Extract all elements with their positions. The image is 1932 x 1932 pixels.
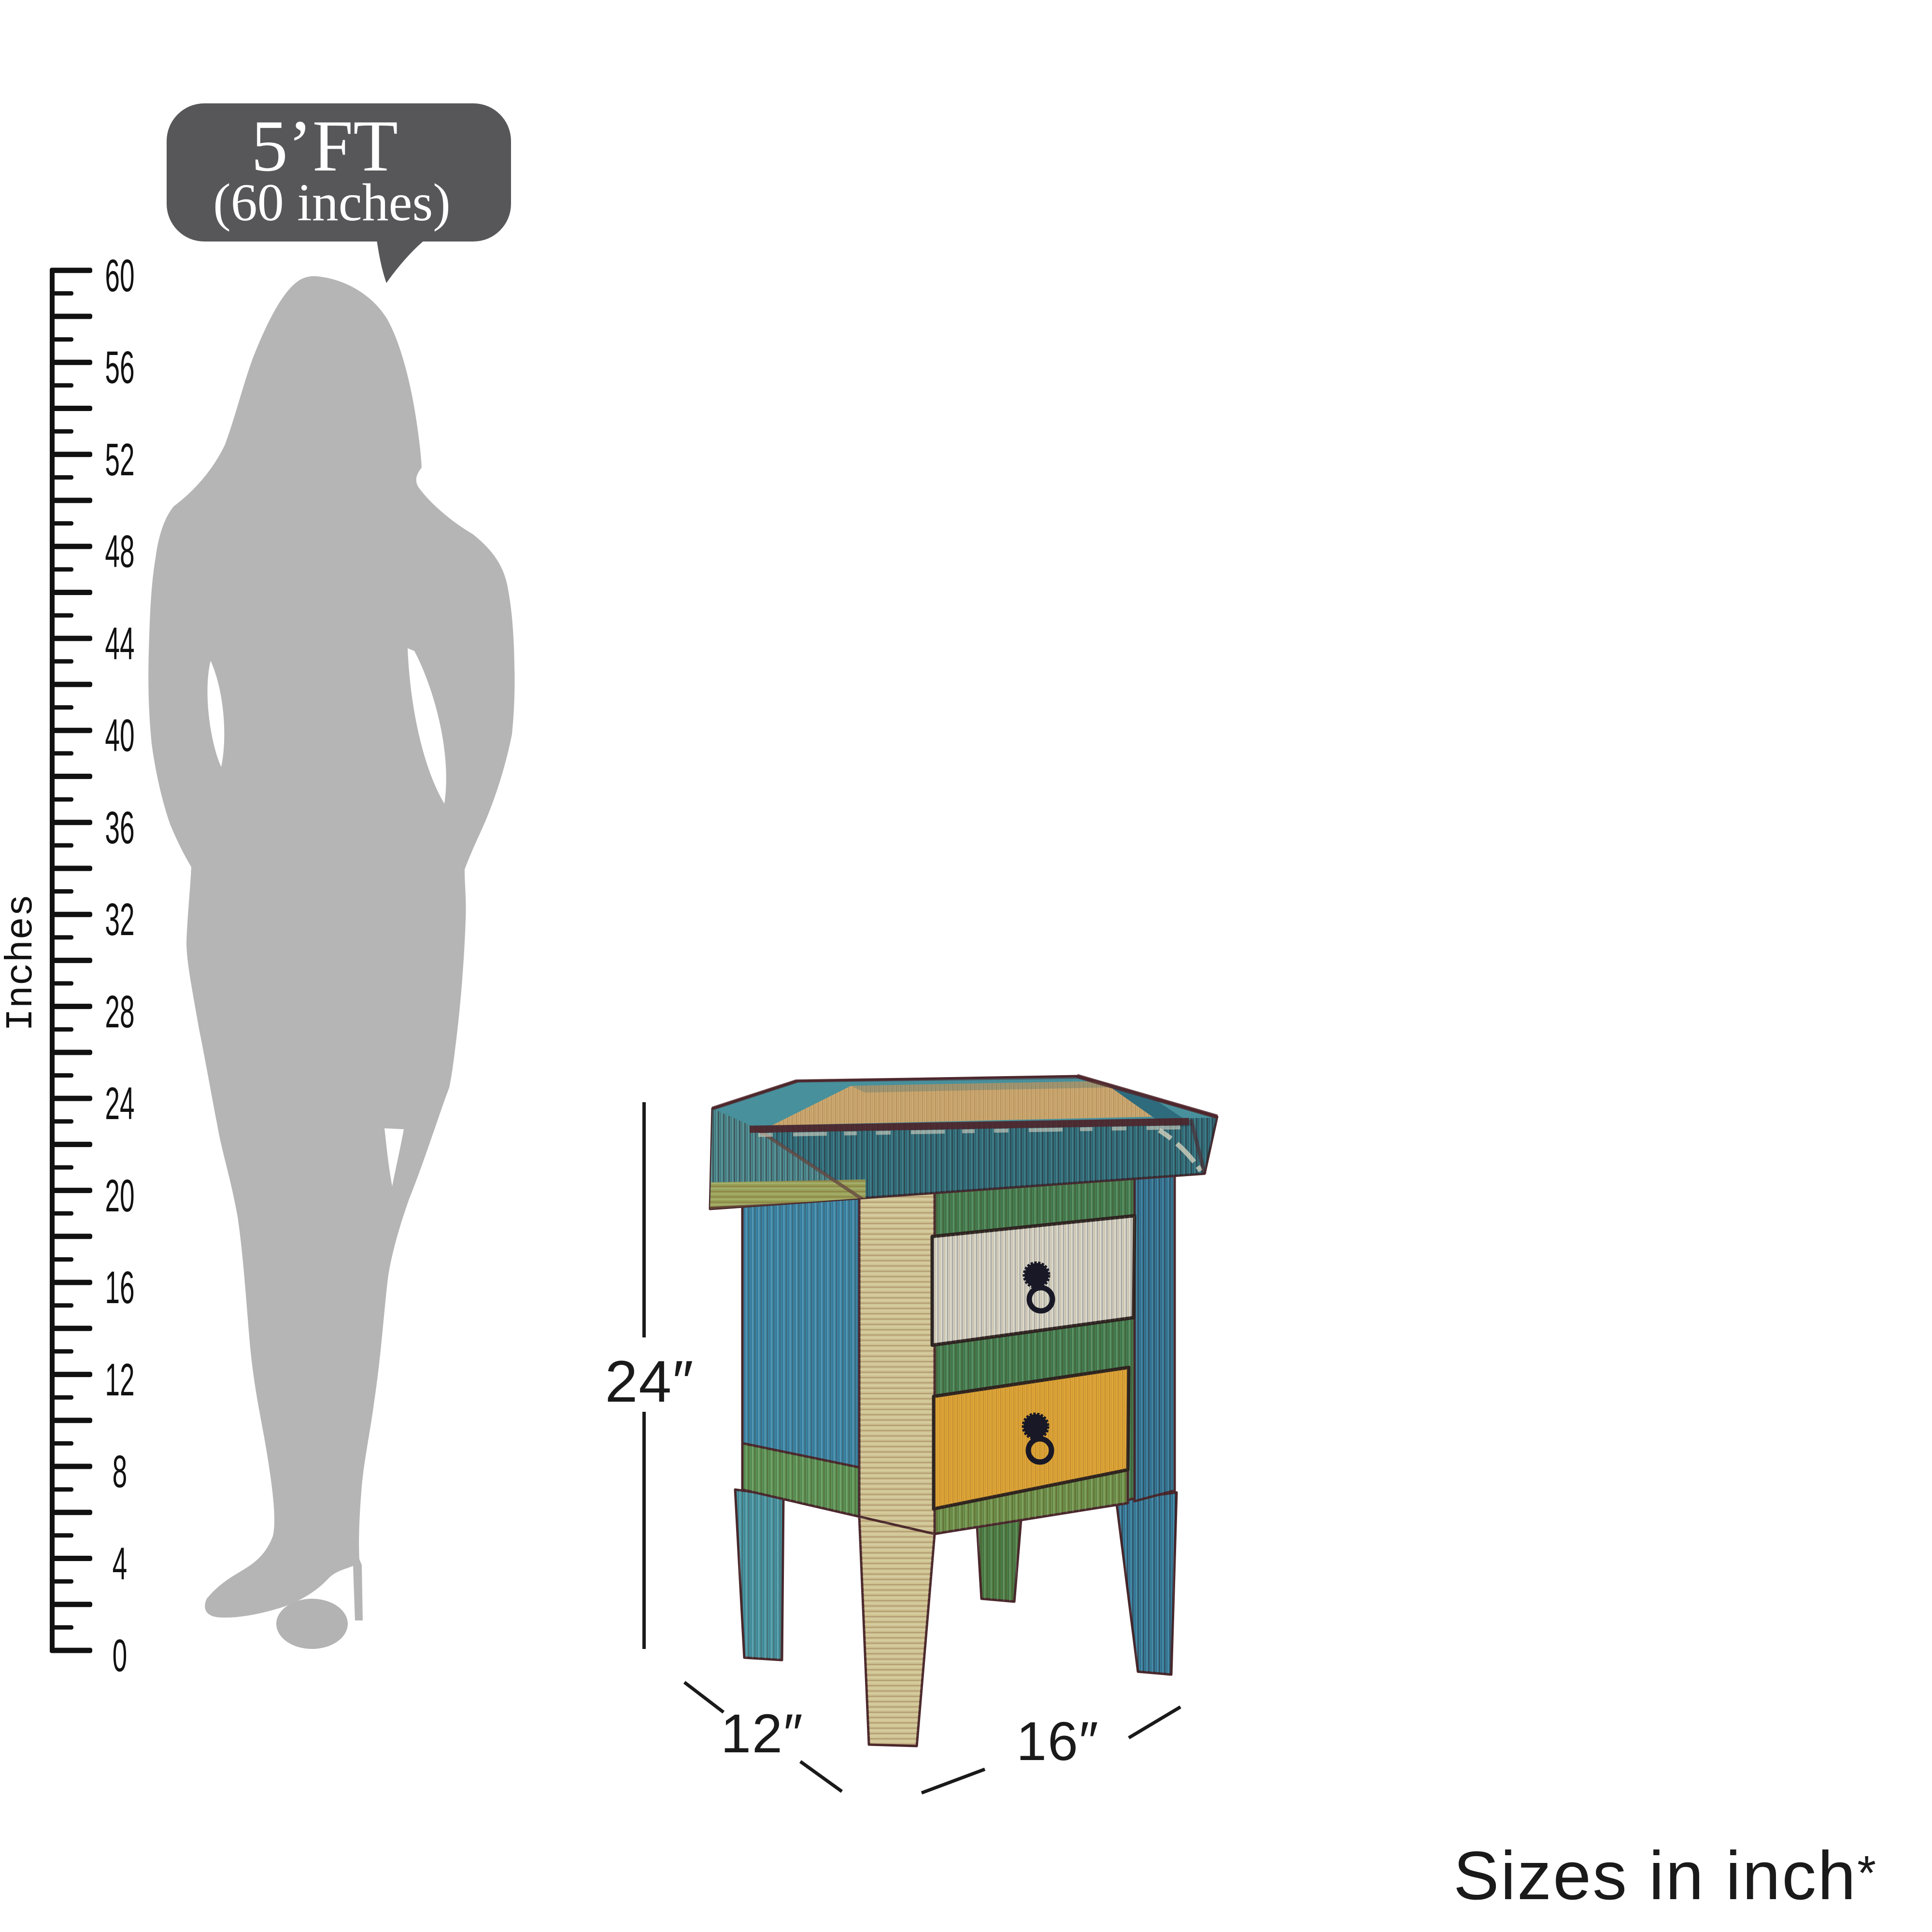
svg-text:52: 52 <box>105 435 134 485</box>
svg-text:16″: 16″ <box>1016 1711 1099 1772</box>
svg-text:12″: 12″ <box>721 1703 804 1764</box>
svg-text:(60 inches): (60 inches) <box>213 173 451 232</box>
svg-text:48: 48 <box>105 526 134 577</box>
svg-text:0: 0 <box>113 1631 128 1681</box>
svg-text:32: 32 <box>105 895 134 945</box>
svg-text:20: 20 <box>105 1171 134 1222</box>
svg-text:12: 12 <box>105 1355 134 1406</box>
svg-text:44: 44 <box>105 619 134 669</box>
svg-text:24″: 24″ <box>605 1349 695 1414</box>
svg-text:56: 56 <box>105 342 134 393</box>
svg-text:28: 28 <box>105 987 134 1037</box>
svg-text:Sizes in inch*: Sizes in inch* <box>1453 1837 1877 1914</box>
svg-text:4: 4 <box>113 1539 128 1590</box>
svg-text:60: 60 <box>105 251 134 301</box>
svg-text:40: 40 <box>105 710 134 761</box>
svg-text:Inches: Inches <box>0 894 43 1031</box>
svg-text:16: 16 <box>105 1263 134 1313</box>
svg-text:24: 24 <box>105 1079 134 1129</box>
svg-text:8: 8 <box>113 1447 128 1497</box>
svg-text:36: 36 <box>105 803 134 853</box>
